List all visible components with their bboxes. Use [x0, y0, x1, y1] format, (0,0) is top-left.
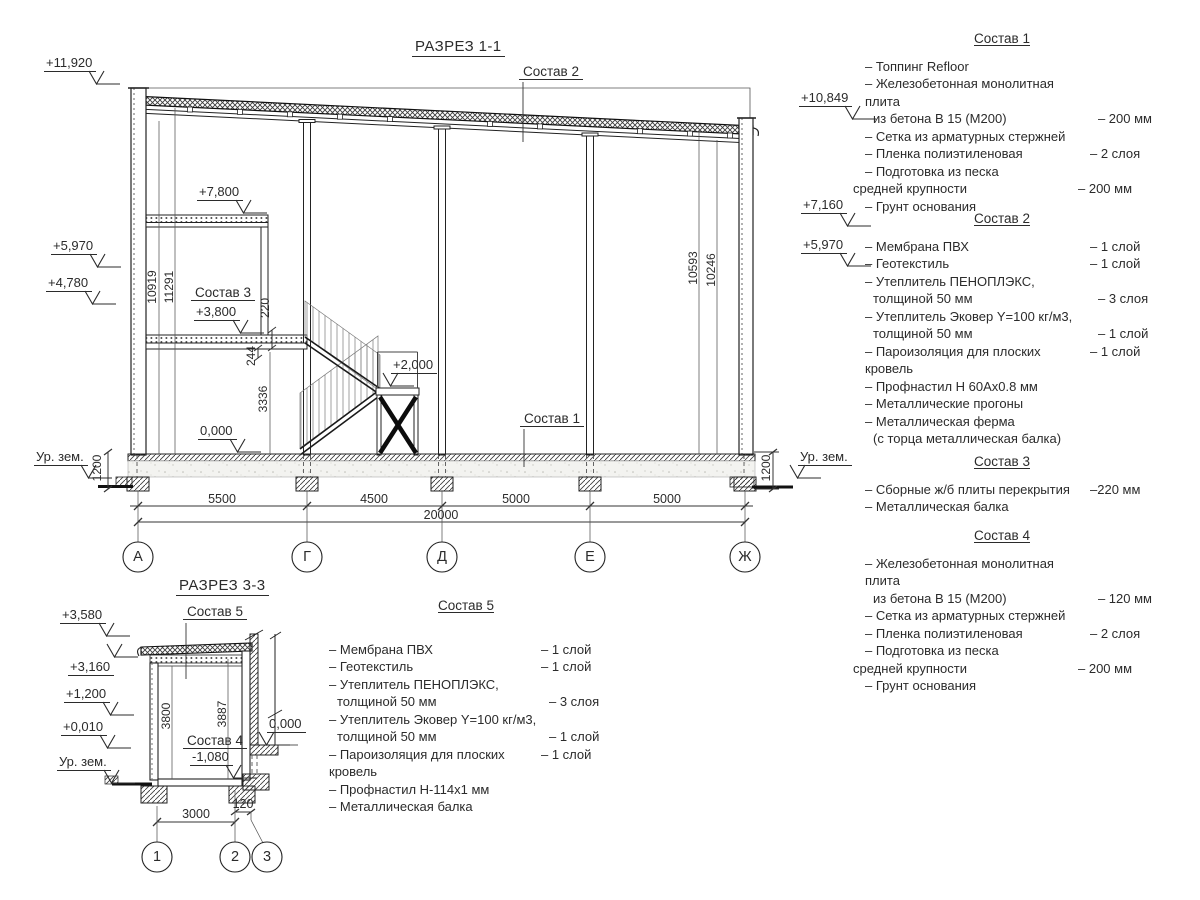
ground-ledge-right: [730, 477, 754, 487]
elevation-mark: +3,580: [60, 607, 106, 624]
material-thickness: [1098, 430, 1152, 448]
composition-callout: Состав 3: [191, 285, 255, 301]
ground-ledge-left: [116, 477, 132, 486]
material-thickness: [541, 711, 616, 729]
elevation-arrow-icon: [236, 199, 268, 216]
section-1-drawing: [98, 82, 793, 572]
material-list-item: – Металлические прогоны: [852, 395, 1152, 413]
material-thickness: – 1 слой: [549, 728, 616, 746]
material-list-item: толщиной 50 мм– 1 слой: [852, 325, 1152, 343]
material-list-item: – Утеплитель ПЕНОПЛЭКС,: [852, 273, 1152, 291]
elevation-arrow-icon: [89, 70, 121, 87]
elevation-arrow-icon: [90, 253, 122, 270]
elevation-mark: 0,000: [267, 716, 306, 733]
material-name: толщиной 50 мм: [316, 728, 549, 746]
material-list-item: – Мембрана ПВХ– 1 слой: [852, 238, 1152, 256]
elevation-arrow-icon: [233, 319, 265, 336]
grid-axis-label: Е: [575, 550, 605, 565]
elevation-mark: Ур. зем.: [57, 754, 111, 771]
composition-items: – Топпинг Refloor– Железобетонная моноли…: [852, 58, 1152, 216]
grid-axis-label: 1: [142, 850, 172, 865]
composition-items: – Мембрана ПВХ– 1 слой– Геотекстиль– 1 с…: [852, 238, 1152, 448]
footings: [127, 477, 756, 491]
material-list-item: – Железобетонная монолитная плита: [852, 75, 1152, 110]
elevation-mark: +10,849: [799, 90, 852, 107]
material-name: – Пароизоляция для плоских кровель: [852, 343, 1090, 378]
material-thickness: [1090, 163, 1152, 181]
material-list-item: – Геотекстиль– 1 слой: [316, 658, 616, 676]
material-name: – Утеплитель Эковер Y=100 кг/м3,: [316, 711, 541, 729]
material-list-item: – Сетка из арматурных стержней: [852, 128, 1152, 146]
grid-axis-label: Г: [292, 550, 322, 565]
material-name: – Сетка из арматурных стержней: [852, 607, 1090, 625]
dimension-value-vertical: 10919: [145, 270, 159, 303]
material-list-item: – Профнастил Н 60Ах0.8 мм: [852, 378, 1152, 396]
material-list-item: средней крупности– 200 мм: [852, 660, 1152, 678]
dimension-value-vertical: 244: [244, 346, 258, 366]
material-name: – Мембрана ПВХ: [852, 238, 1090, 256]
section-title: РАЗРЕЗ 3-3: [176, 577, 269, 596]
material-thickness: [1090, 677, 1152, 695]
material-thickness: – 2 слоя: [1090, 145, 1152, 163]
material-list-item: (с торца металлическая балка): [852, 430, 1152, 448]
grid-axis-label: 2: [220, 850, 250, 865]
material-thickness: [1090, 128, 1152, 146]
material-thickness: [1090, 395, 1152, 413]
leader-lines: [523, 82, 524, 467]
dimension-value-vertical: 1200: [759, 455, 773, 482]
composition-title: Состав 3: [852, 453, 1152, 471]
material-thickness: [541, 798, 616, 816]
elevation-label: +3,160: [68, 659, 114, 676]
elevation-label: Ур. зем.: [34, 449, 88, 466]
material-thickness: – 200 мм: [1098, 110, 1152, 128]
grid-axis-label: Д: [427, 550, 457, 565]
dimension-value-vertical: 3887: [215, 701, 229, 728]
material-name: – Сетка из арматурных стержней: [852, 128, 1090, 146]
material-thickness: [1090, 498, 1152, 516]
material-name: – Железобетонная монолитная плита: [852, 555, 1090, 590]
material-name: – Утеплитель ПЕНОПЛЭКС,: [316, 676, 541, 694]
material-list-item: – Металлическая ферма: [852, 413, 1152, 431]
material-name: – Пароизоляция для плоских кровель: [316, 746, 541, 781]
material-name: – Металлическая балка: [316, 798, 541, 816]
material-thickness: – 2 слоя: [1090, 625, 1152, 643]
dimension-value-vertical: 10593: [686, 251, 700, 284]
composition-callout: Состав 1: [520, 411, 584, 427]
material-list-item: – Профнастил Н-114х1 мм: [316, 781, 616, 799]
material-name: – Сборные ж/б плиты перекрытия: [852, 481, 1090, 499]
material-name: – Железобетонная монолитная плита: [852, 75, 1090, 110]
material-thickness: – 200 мм: [1078, 180, 1152, 198]
material-thickness: [1090, 308, 1152, 326]
grid-axis-label: Ж: [730, 550, 760, 565]
dimension-value: 20000: [424, 508, 459, 522]
material-name: – Профнастил Н-114х1 мм: [316, 781, 541, 799]
composition-callout: Состав 5: [183, 604, 247, 620]
material-name: – Металлическая ферма: [852, 413, 1090, 431]
material-list-item: – Подготовка из песка: [852, 642, 1152, 660]
elevation-arrow-icon: [104, 769, 136, 786]
elevation-arrow-icon: [790, 464, 822, 481]
floor-slab: [98, 454, 793, 491]
material-thickness: – 1 слой: [541, 746, 616, 781]
dimension-value: 3000: [182, 807, 210, 821]
elevation-arrow-icon: [383, 372, 415, 389]
elevation-mark: +5,970: [801, 237, 847, 254]
grid-axis-label: А: [123, 550, 153, 565]
elevation-mark: +3,800: [194, 304, 240, 321]
composition-list-3: Состав 3 – Сборные ж/б плиты перекрытия–…: [852, 453, 1152, 516]
material-list-item: – Пароизоляция для плоских кровель– 1 сл…: [316, 746, 616, 781]
composition-title: Состав 5: [316, 597, 616, 615]
material-list-item: из бетона В 15 (М200)– 200 мм: [852, 110, 1152, 128]
material-name: – Топпинг Refloor: [852, 58, 1090, 76]
material-thickness: [541, 676, 616, 694]
material-thickness: – 1 слой: [1090, 255, 1152, 273]
elevation-mark: Ур. зем.: [798, 449, 852, 466]
composition-items: – Железобетонная монолитная плитаиз бето…: [852, 555, 1152, 695]
material-thickness: – 1 слой: [541, 658, 616, 676]
elevation-arrow-icon: [81, 464, 113, 481]
composition-list-1: Состав 1 – Топпинг Refloor– Железобетонн…: [852, 30, 1152, 215]
material-thickness: [1090, 607, 1152, 625]
elevation-arrow-icon: [85, 290, 117, 307]
elevation-label: +10,849: [799, 90, 852, 107]
material-thickness: [1090, 58, 1152, 76]
material-list-item: – Пароизоляция для плоских кровель– 1 сл…: [852, 343, 1152, 378]
material-list-item: толщиной 50 мм– 1 слой: [316, 728, 616, 746]
material-name: – Подготовка из песка: [852, 163, 1090, 181]
dimension-value: 4500: [360, 492, 388, 506]
material-name: из бетона В 15 (М200): [852, 590, 1098, 608]
dimension-value-vertical: 3800: [159, 703, 173, 730]
x-brace: [380, 397, 416, 453]
composition-callout: Состав 2: [519, 64, 583, 80]
material-name: толщиной 50 мм: [852, 290, 1098, 308]
elevation-mark: +5,970: [51, 238, 97, 255]
material-thickness: [1090, 642, 1152, 660]
dimension-value: 120: [233, 797, 254, 811]
wall-axis-zh: [737, 118, 758, 455]
gutter-hook: [753, 128, 758, 136]
material-thickness: – 1 слой: [1090, 343, 1152, 378]
material-name: – Грунт основания: [852, 677, 1090, 695]
elevation-arrow-icon: [103, 701, 135, 718]
stair-platform: [376, 388, 419, 395]
material-thickness: – 3 слоя: [549, 693, 616, 711]
material-list-item: – Металлическая балка: [316, 798, 616, 816]
elevation-mark: +11,920: [44, 55, 96, 72]
material-thickness: – 200 мм: [1078, 660, 1152, 678]
material-list-item: – Железобетонная монолитная плита: [852, 555, 1152, 590]
elevation-mark: +1,200: [64, 686, 110, 703]
material-thickness: [1090, 555, 1152, 590]
elevation-mark: 0,000: [198, 423, 237, 440]
material-list-item: – Топпинг Refloor: [852, 58, 1152, 76]
material-list-item: толщиной 50 мм– 3 слоя: [316, 693, 616, 711]
elevation-arrow-icon: [259, 731, 291, 748]
composition-title: Состав 4: [852, 527, 1152, 545]
material-list-item: средней крупности– 200 мм: [852, 180, 1152, 198]
material-thickness: [541, 781, 616, 799]
composition-items: – Мембрана ПВХ– 1 слой– Геотекстиль– 1 с…: [316, 641, 616, 816]
section-title: РАЗРЕЗ 1-1: [412, 38, 505, 57]
elevation-label: Ур. зем.: [57, 754, 111, 771]
material-name: толщиной 50 мм: [316, 693, 549, 711]
material-name: – Пленка полиэтиленовая: [852, 145, 1090, 163]
material-name: – Мембрана ПВХ: [316, 641, 541, 659]
material-list-item: – Геотекстиль– 1 слой: [852, 255, 1152, 273]
dimension-value-vertical: 10246: [704, 253, 718, 286]
composition-title: Состав 1: [852, 30, 1152, 48]
material-list-item: – Сетка из арматурных стержней: [852, 607, 1152, 625]
elevation-mark: +0,010: [61, 719, 107, 736]
material-name: – Геотекстиль: [852, 255, 1090, 273]
dimension-value: 5000: [653, 492, 681, 506]
elevation-arrow-icon: [230, 438, 262, 455]
dimension-value-vertical: 11291: [162, 271, 176, 303]
dimension-value-vertical: 3336: [256, 386, 270, 413]
material-name: – Пленка полиэтиленовая: [852, 625, 1090, 643]
material-name: – Металлические прогоны: [852, 395, 1090, 413]
elevation-arrow-icon: [100, 734, 132, 751]
dimension-value: 5500: [208, 492, 236, 506]
material-list-item: – Подготовка из песка: [852, 163, 1152, 181]
material-name: – Подготовка из песка: [852, 642, 1090, 660]
material-list-item: – Сборные ж/б плиты перекрытия–220 мм: [852, 481, 1152, 499]
material-name: – Геотекстиль: [316, 658, 541, 676]
material-thickness: [1090, 413, 1152, 431]
material-list-item: – Пленка полиэтиленовая– 2 слоя: [852, 625, 1152, 643]
material-name: – Профнастил Н 60Ах0.8 мм: [852, 378, 1090, 396]
material-name: – Утеплитель ПЕНОПЛЭКС,: [852, 273, 1090, 291]
elevation-mark: +4,780: [46, 275, 92, 292]
dimension-value-vertical: 220: [258, 298, 272, 318]
composition-items: – Сборные ж/б плиты перекрытия–220 мм– М…: [852, 481, 1152, 516]
grid-axis-label: 3: [252, 850, 282, 865]
elevation-arrow-icon: [226, 764, 258, 781]
material-list-item: – Утеплитель Эковер Y=100 кг/м3,: [852, 308, 1152, 326]
composition-list-4: Состав 4 – Железобетонная монолитная пли…: [852, 527, 1152, 695]
elevation-mark: +2,000: [391, 357, 437, 374]
material-name: толщиной 50 мм: [852, 325, 1098, 343]
composition-title: Состав 2: [852, 210, 1152, 228]
material-list-item: – Металлическая балка: [852, 498, 1152, 516]
composition-list-2: Состав 2 – Мембрана ПВХ– 1 слой– Геотекс…: [852, 210, 1152, 448]
composition-list-5: Состав 5 – Мембрана ПВХ– 1 слой– Геотекс…: [316, 597, 616, 816]
dimension-value: 5000: [502, 492, 530, 506]
material-thickness: – 1 слой: [1090, 238, 1152, 256]
material-thickness: –220 мм: [1090, 481, 1152, 499]
material-thickness: – 1 слой: [1098, 325, 1152, 343]
composition-callout: Состав 4: [183, 733, 247, 749]
material-list-item: – Мембрана ПВХ– 1 слой: [316, 641, 616, 659]
elevation-arrow-icon: [99, 622, 131, 639]
material-list-item: – Утеплитель Эковер Y=100 кг/м3,: [316, 711, 616, 729]
drawing-sheet: РАЗРЕЗ 1-1РАЗРЕЗ 3-3Состав 2Состав 1Сост…: [0, 0, 1200, 900]
elevation-mark: +3,160: [68, 659, 114, 676]
material-list-item: – Грунт основания: [852, 677, 1152, 695]
material-name: – Металлическая балка: [852, 498, 1090, 516]
elevation-arrow-icon: [107, 643, 139, 660]
material-thickness: [1090, 75, 1152, 110]
elevation-mark: -1,080: [190, 749, 233, 766]
material-thickness: – 120 мм: [1098, 590, 1152, 608]
material-thickness: [1090, 273, 1152, 291]
elevation-mark: +7,160: [801, 197, 847, 214]
material-name: из бетона В 15 (М200): [852, 110, 1098, 128]
material-name: средней крупности: [852, 660, 1078, 678]
material-name: средней крупности: [852, 180, 1078, 198]
material-thickness: – 1 слой: [541, 641, 616, 659]
material-list-item: из бетона В 15 (М200)– 120 мм: [852, 590, 1152, 608]
elevation-mark: +7,800: [197, 184, 243, 201]
material-list-item: толщиной 50 мм– 3 слоя: [852, 290, 1152, 308]
material-thickness: [1090, 378, 1152, 396]
elevation-mark: Ур. зем.: [34, 449, 88, 466]
material-name: (с торца металлическая балка): [852, 430, 1098, 448]
material-list-item: – Утеплитель ПЕНОПЛЭКС,: [316, 676, 616, 694]
material-list-item: – Пленка полиэтиленовая– 2 слоя: [852, 145, 1152, 163]
material-thickness: – 3 слоя: [1098, 290, 1152, 308]
material-name: – Утеплитель Эковер Y=100 кг/м3,: [852, 308, 1090, 326]
